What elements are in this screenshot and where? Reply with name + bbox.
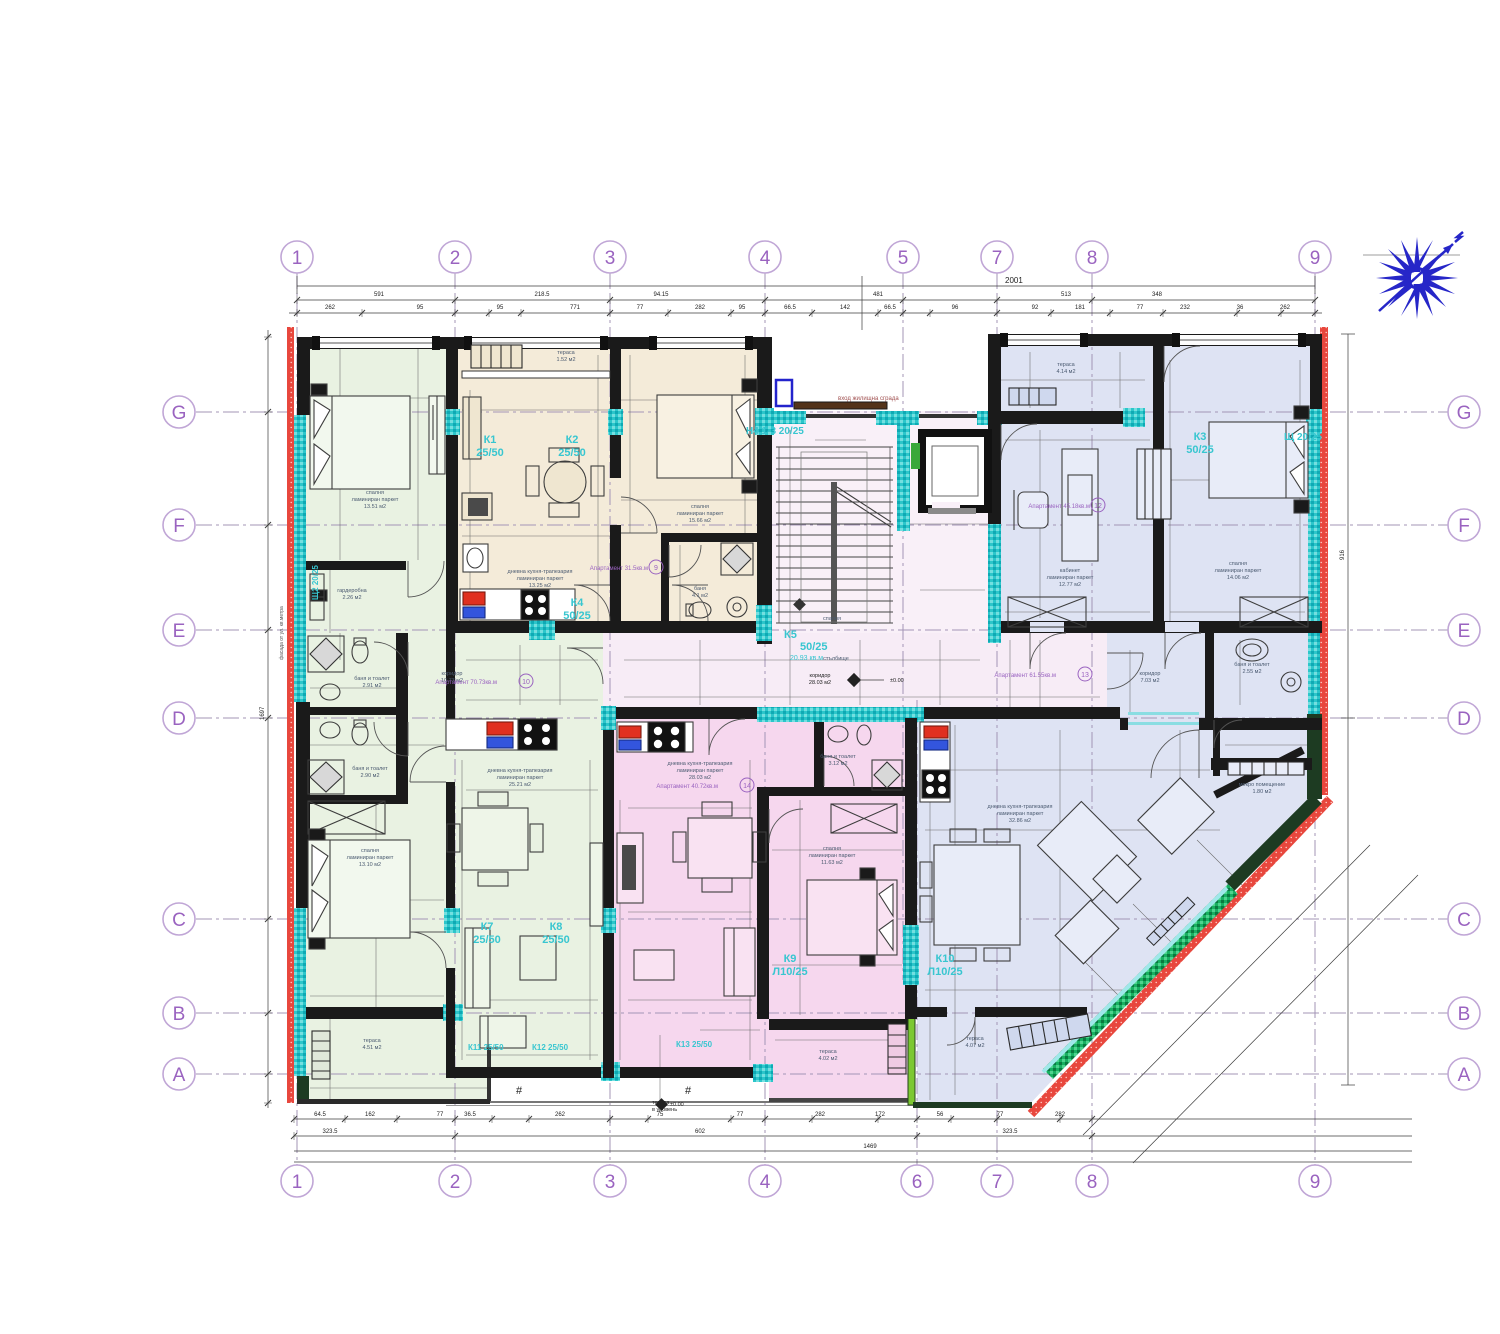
svg-text:баня и тоалет: баня и тоалет [1234, 662, 1270, 668]
svg-text:14.06 м2: 14.06 м2 [1227, 575, 1249, 581]
svg-text:ламиниран паркет: ламиниран паркет [497, 775, 544, 781]
svg-text:15.66 м2: 15.66 м2 [689, 518, 711, 524]
svg-text:ламиниран паркет: ламиниран паркет [1215, 568, 1262, 574]
svg-text:4.07 м2: 4.07 м2 [965, 1043, 984, 1049]
svg-text:4.1 м2: 4.1 м2 [692, 593, 708, 599]
svg-text:4: 4 [760, 1172, 771, 1193]
svg-text:E: E [1458, 621, 1471, 642]
svg-text:282: 282 [1055, 1112, 1066, 1118]
svg-text:232: 232 [1180, 305, 1191, 311]
svg-text:К7: К7 [481, 921, 494, 933]
svg-text:1: 1 [292, 1172, 303, 1193]
svg-text:тераса: тераса [966, 1036, 984, 1042]
svg-text:218.5: 218.5 [534, 292, 550, 298]
svg-text:50/25: 50/25 [1186, 444, 1214, 456]
svg-text:К13 25/50: К13 25/50 [676, 1040, 713, 1049]
svg-text:2.26 м2: 2.26 м2 [342, 595, 361, 601]
svg-text:A: A [173, 1065, 186, 1086]
svg-text:77: 77 [637, 305, 644, 311]
svg-text:916: 916 [1340, 549, 1346, 560]
svg-text:14: 14 [743, 783, 751, 790]
svg-text:94.15: 94.15 [653, 292, 669, 298]
svg-text:9: 9 [1310, 248, 1321, 269]
svg-text:Л10/25: Л10/25 [927, 966, 962, 978]
svg-text:спалня: спалня [823, 846, 841, 852]
svg-text:2: 2 [450, 1172, 461, 1193]
svg-text:тераса: тераса [557, 350, 575, 356]
svg-text:12: 12 [1094, 503, 1102, 510]
svg-text:спалня: спалня [1229, 561, 1247, 567]
svg-text:D: D [172, 709, 186, 730]
svg-text:172: 172 [875, 1112, 886, 1118]
svg-text:гардеробна: гардеробна [337, 588, 367, 594]
svg-text:32.86 м2: 32.86 м2 [1009, 818, 1031, 824]
svg-text:36: 36 [1237, 305, 1244, 311]
svg-text:±0.00: ±0.00 [670, 1102, 684, 1108]
svg-text:4: 4 [760, 248, 771, 269]
svg-text:7: 7 [992, 248, 1003, 269]
svg-text:спалня: спалня [823, 616, 841, 622]
svg-text:стълбище: стълбище [823, 656, 849, 662]
svg-text:348: 348 [1152, 292, 1163, 298]
svg-text:ламиниран паркет: ламиниран паркет [347, 855, 394, 861]
svg-text:262: 262 [555, 1112, 566, 1118]
svg-text:13.25 м2: 13.25 м2 [529, 583, 551, 589]
svg-text:ламиниран паркет: ламиниран паркет [352, 497, 399, 503]
svg-text:E: E [173, 621, 186, 642]
svg-text:спалня: спалня [361, 848, 379, 854]
svg-text:F: F [173, 516, 185, 537]
svg-text:28.03 м2: 28.03 м2 [689, 775, 711, 781]
svg-text:тераса: тераса [819, 1049, 837, 1055]
svg-text:25.21 м2: 25.21 м2 [509, 782, 531, 788]
svg-text:Апартамент 61.55кв.м: Апартамент 61.55кв.м [994, 673, 1056, 679]
svg-text:1.52 м2: 1.52 м2 [556, 357, 575, 363]
svg-text:дневна кухня-трапезария: дневна кухня-трапезария [988, 804, 1053, 810]
svg-text:1697: 1697 [260, 706, 266, 720]
svg-text:142: 142 [840, 305, 851, 311]
svg-text:баня и тоалет: баня и тоалет [820, 754, 856, 760]
svg-text:92: 92 [1032, 305, 1039, 311]
svg-text:мокро помещение: мокро помещение [1239, 782, 1285, 788]
svg-text:ламиниран паркет: ламиниран паркет [517, 576, 564, 582]
svg-text:G: G [172, 403, 187, 424]
svg-text:1.80 м2: 1.80 м2 [1252, 789, 1271, 795]
svg-text:К1: К1 [484, 434, 497, 446]
svg-text:дневна кухня-трапезария: дневна кухня-трапезария [488, 768, 553, 774]
svg-text:4.14 м2: 4.14 м2 [1056, 369, 1075, 375]
svg-text:2.90 м2: 2.90 м2 [360, 773, 379, 779]
svg-text:дневна кухня-трапезария: дневна кухня-трапезария [508, 569, 573, 575]
svg-text:ламиниран паркет: ламиниран паркет [677, 768, 724, 774]
svg-text:262: 262 [325, 305, 336, 311]
svg-text:дневна кухня-трапезария: дневна кухня-трапезария [668, 761, 733, 767]
svg-text:8: 8 [1087, 248, 1098, 269]
svg-text:66.5: 66.5 [884, 305, 896, 311]
svg-text:9: 9 [654, 565, 658, 572]
svg-text:ламиниран паркет: ламиниран паркет [997, 811, 1044, 817]
svg-text:95: 95 [739, 305, 746, 311]
svg-text:771: 771 [570, 305, 581, 311]
svg-text:7: 7 [992, 1172, 1003, 1193]
svg-text:323.5: 323.5 [322, 1129, 338, 1135]
svg-text:коридор: коридор [442, 671, 463, 677]
svg-text:96: 96 [952, 305, 959, 311]
svg-text:77: 77 [997, 1112, 1004, 1118]
svg-text:C: C [1457, 910, 1471, 931]
svg-text:кабинет: кабинет [1060, 568, 1081, 574]
svg-text:ламиниран паркет: ламиниран паркет [1047, 575, 1094, 581]
svg-text:282: 282 [815, 1112, 826, 1118]
svg-text:20.93 кв.м: 20.93 кв.м [790, 655, 823, 662]
svg-text:77: 77 [737, 1112, 744, 1118]
svg-text:181: 181 [1075, 305, 1086, 311]
svg-text:К4: К4 [571, 597, 585, 609]
svg-text:2: 2 [450, 248, 461, 269]
svg-text:ламиниран паркет: ламиниран паркет [809, 853, 856, 859]
svg-text:591: 591 [374, 292, 385, 298]
svg-text:13: 13 [1081, 672, 1089, 679]
svg-text:B: B [1458, 1004, 1471, 1025]
svg-text:F: F [1458, 516, 1470, 537]
svg-text:9: 9 [1310, 1172, 1321, 1193]
svg-text:Апартамент 70.73кв.м: Апартамент 70.73кв.м [435, 680, 497, 686]
svg-text:13.51 м2: 13.51 м2 [364, 504, 386, 510]
svg-text:4.02 м2: 4.02 м2 [818, 1056, 837, 1062]
svg-text:ламиниран паркет: ламиниран паркет [677, 511, 724, 517]
svg-text:95: 95 [417, 305, 424, 311]
svg-text:3: 3 [605, 1172, 616, 1193]
svg-text:95: 95 [497, 305, 504, 311]
svg-text:тераса: тераса [1057, 362, 1075, 368]
svg-text:коридор: коридор [810, 673, 831, 679]
svg-text:B: B [173, 1004, 186, 1025]
svg-text:3: 3 [605, 248, 616, 269]
svg-text:6: 6 [912, 1172, 923, 1193]
svg-text:50/25: 50/25 [800, 641, 828, 653]
svg-text:Апартамент 40.72кв.м: Апартамент 40.72кв.м [656, 784, 718, 790]
svg-text:D: D [1457, 709, 1471, 730]
svg-text:Щ2 20/25: Щ2 20/25 [311, 565, 320, 600]
svg-text:спалня: спалня [366, 490, 384, 496]
svg-text:7.03 м2: 7.03 м2 [1140, 678, 1159, 684]
svg-text:262: 262 [1280, 305, 1291, 311]
svg-text:36.5: 36.5 [464, 1112, 476, 1118]
svg-text:25/50: 25/50 [558, 447, 586, 459]
svg-text:К10: К10 [936, 953, 955, 965]
svg-text:28.03 м2: 28.03 м2 [809, 680, 831, 686]
svg-text:G: G [1457, 403, 1472, 424]
svg-text:C: C [172, 910, 186, 931]
svg-text:282: 282 [695, 305, 706, 311]
svg-text:25/50: 25/50 [476, 447, 504, 459]
svg-text:66.5: 66.5 [784, 305, 796, 311]
svg-text:баня: баня [694, 586, 706, 592]
svg-text:К9: К9 [784, 953, 797, 965]
svg-text:±0.00: ±0.00 [890, 678, 904, 684]
svg-text:50/25: 50/25 [563, 610, 591, 622]
svg-text:фасада от ул. кв.метра: фасада от ул. кв.метра [279, 606, 285, 660]
svg-text:Апартамент 31.5кв.м: Апартамент 31.5кв.м [590, 566, 648, 572]
svg-text:2001: 2001 [1005, 276, 1023, 285]
svg-text:#: # [516, 1085, 523, 1097]
svg-text:25/50: 25/50 [473, 934, 501, 946]
svg-text:25/50: 25/50 [542, 934, 570, 946]
svg-text:1469: 1469 [863, 1144, 877, 1150]
svg-text:8: 8 [1087, 1172, 1098, 1193]
svg-text:77: 77 [1137, 305, 1144, 311]
svg-text:75: 75 [657, 1112, 664, 1118]
svg-text:#: # [685, 1085, 692, 1097]
svg-text:162: 162 [365, 1112, 376, 1118]
svg-text:Л10/25: Л10/25 [772, 966, 807, 978]
svg-text:2.91 м2: 2.91 м2 [362, 683, 381, 689]
svg-text:спалня: спалня [691, 504, 709, 510]
svg-text:Апартамент 45.18кв.м: Апартамент 45.18кв.м [1028, 504, 1090, 510]
svg-text:A: A [1458, 1065, 1471, 1086]
svg-text:К11 25/50: К11 25/50 [468, 1043, 504, 1052]
svg-text:10: 10 [522, 679, 530, 686]
svg-text:баня и тоалет: баня и тоалет [354, 676, 390, 682]
svg-text:11.63 м2: 11.63 м2 [821, 860, 843, 866]
svg-text:481: 481 [873, 292, 884, 298]
svg-text:К5: К5 [784, 629, 797, 641]
svg-text:вход жилищна сграда: вход жилищна сграда [838, 396, 899, 402]
svg-text:77: 77 [437, 1112, 444, 1118]
svg-text:коридор: коридор [1140, 671, 1161, 677]
svg-text:64.5: 64.5 [314, 1112, 326, 1118]
svg-text:1: 1 [292, 248, 303, 269]
svg-text:12.77 м2: 12.77 м2 [1059, 582, 1081, 588]
svg-text:323.5: 323.5 [1002, 1129, 1018, 1135]
svg-text:Н4.1-3 20/25: Н4.1-3 20/25 [746, 426, 804, 437]
svg-text:602: 602 [695, 1129, 706, 1135]
svg-text:13.10 м2: 13.10 м2 [359, 862, 381, 868]
svg-text:Щ 20/25: Щ 20/25 [1284, 432, 1322, 443]
svg-text:К3: К3 [1194, 431, 1207, 443]
svg-text:3.12 м2: 3.12 м2 [828, 761, 847, 767]
svg-text:баня и тоалет: баня и тоалет [352, 766, 388, 772]
svg-text:4.51 м2: 4.51 м2 [362, 1045, 381, 1051]
svg-text:К8: К8 [550, 921, 563, 933]
svg-text:К2: К2 [566, 434, 579, 446]
svg-text:К12 25/50: К12 25/50 [532, 1043, 569, 1052]
svg-text:2.55 м2: 2.55 м2 [1242, 669, 1261, 675]
svg-text:56: 56 [937, 1112, 944, 1118]
svg-text:513: 513 [1061, 292, 1072, 298]
svg-text:5: 5 [898, 248, 909, 269]
svg-text:тераса: тераса [363, 1038, 381, 1044]
